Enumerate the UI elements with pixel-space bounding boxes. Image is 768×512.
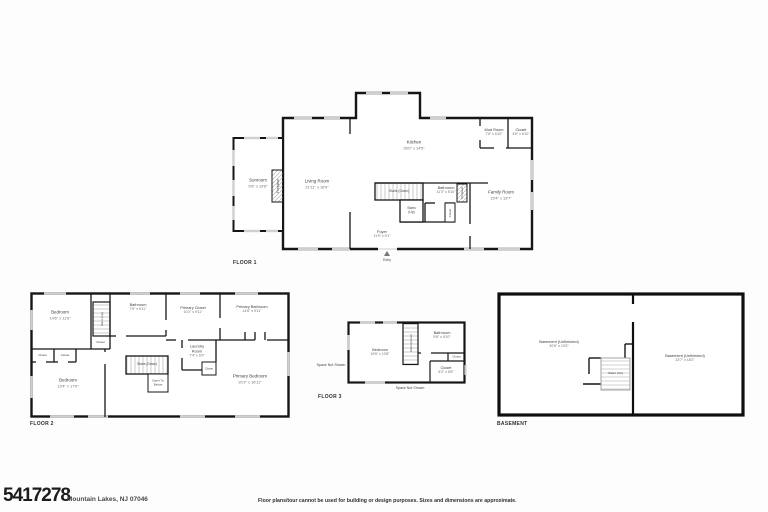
entry-label: Entry bbox=[383, 259, 391, 263]
room-label-basement-left: Basement (Unfinished) 30'6" x 19'3" bbox=[539, 339, 579, 349]
floor2-plan: Bedroom 14'6" x 11'6" Stairs (Up) Closet… bbox=[30, 292, 290, 428]
disclaimer-text: Floor plans/tour cannot be used for buil… bbox=[258, 498, 517, 504]
basement-plan: Basement (Unfinished) 30'6" x 19'3" Stai… bbox=[497, 292, 745, 428]
room-label-closet-a: Closet bbox=[96, 341, 105, 345]
floor1-title: FLOOR 1 bbox=[233, 260, 257, 266]
room-label-basement-right: Basement (Unfinished) 23'7" x 18'2" bbox=[665, 353, 705, 363]
floor2-title: FLOOR 2 bbox=[30, 421, 54, 427]
room-label-primary-closet: Primary Closet 10'2" x 9'11" bbox=[180, 305, 206, 315]
room-label-bedroom-tl: Bedroom 14'6" x 11'6" bbox=[49, 310, 70, 321]
room-label-open-below: Open To Below bbox=[151, 379, 165, 386]
basement-walls bbox=[497, 292, 745, 428]
room-label-stairs-up: Stairs (Up) bbox=[404, 207, 419, 215]
room-label-stairs-up: Stairs (Up) bbox=[100, 312, 104, 326]
room-label-foyer: Foyer 11'9" x 9'1" bbox=[374, 229, 391, 239]
floorplan-page: Sunroom 9'6" x 19'8" Fireplace Living Ro… bbox=[0, 0, 768, 512]
floor3-plan: Space Not Shown Bedroom 19'6" x 13'8" St… bbox=[315, 315, 480, 410]
room-label-mud-room: Mud Room 7'6" x 6'10" bbox=[484, 127, 503, 137]
room-label-primary-bathroom: Primary Bathroom 14'6" x 9'11" bbox=[236, 304, 267, 314]
room-label-bedroom: Bedroom 19'6" x 13'8" bbox=[370, 347, 389, 357]
space-not-shown-left: Space Not Shown bbox=[317, 363, 346, 367]
room-label-fireplace-left: Fireplace bbox=[276, 179, 280, 193]
room-label-bedroom-bl: Bedroom 13'4" x 17'6" bbox=[57, 378, 78, 389]
room-label-stairs-down: Stairs (Down) bbox=[137, 363, 157, 367]
mls-number-watermark: 5417278 bbox=[3, 485, 70, 507]
room-label-kitchen: Kitchen 26'0" x 14'5" bbox=[403, 140, 424, 151]
room-label-fireplace-right: Fireplace bbox=[460, 187, 464, 199]
space-not-shown-bottom: Space Not Shown bbox=[396, 385, 425, 389]
room-label-closet-b: Closet bbox=[38, 354, 47, 358]
floor1-plan: Sunroom 9'6" x 19'8" Fireplace Living Ro… bbox=[232, 88, 535, 273]
room-label-closet-small: Closet bbox=[452, 355, 460, 358]
room-label-stairs-down: Stairs (Down) bbox=[389, 190, 409, 194]
room-label-sunroom: Sunroom 9'6" x 19'8" bbox=[248, 178, 267, 189]
room-label-laundry: Laundry Room 7'4" x 6'9" bbox=[186, 344, 208, 359]
room-label-closet-c: Closet bbox=[61, 354, 70, 358]
room-label-stairs-down: Stairs (Down) bbox=[409, 334, 413, 352]
entry-arrow-icon bbox=[384, 251, 390, 256]
property-address: Mountain Lakes, NJ 07046 bbox=[67, 496, 148, 503]
floor3-title: FLOOR 3 bbox=[318, 394, 342, 400]
room-label-stairs-up: Stairs (Up) bbox=[608, 372, 623, 376]
room-label-closet-mid: Closet bbox=[448, 208, 452, 217]
room-label-bathroom: Bathroom 11'3" x 5'10" bbox=[437, 185, 456, 195]
room-label-bathroom: Bathroom 7'5" x 6'11" bbox=[130, 302, 147, 312]
room-label-closet: Closet 5'2" x 5'8" bbox=[438, 365, 453, 375]
room-label-living-room: Living Room 21'11" x 16'9" bbox=[305, 179, 329, 190]
room-label-bathroom: Bathroom 9'8" x 5'10" bbox=[433, 330, 450, 340]
room-label-primary-bedroom: Primary Bedroom 20'2" x 16'11" bbox=[233, 374, 267, 385]
room-label-family-room: Family Room 15'4" x 19'7" bbox=[488, 190, 514, 201]
basement-title: BASEMENT bbox=[497, 421, 527, 427]
room-label-closet-top: Closet 4'6" x 6'10" bbox=[512, 127, 529, 137]
room-label-closet-d: Closet bbox=[205, 367, 213, 370]
